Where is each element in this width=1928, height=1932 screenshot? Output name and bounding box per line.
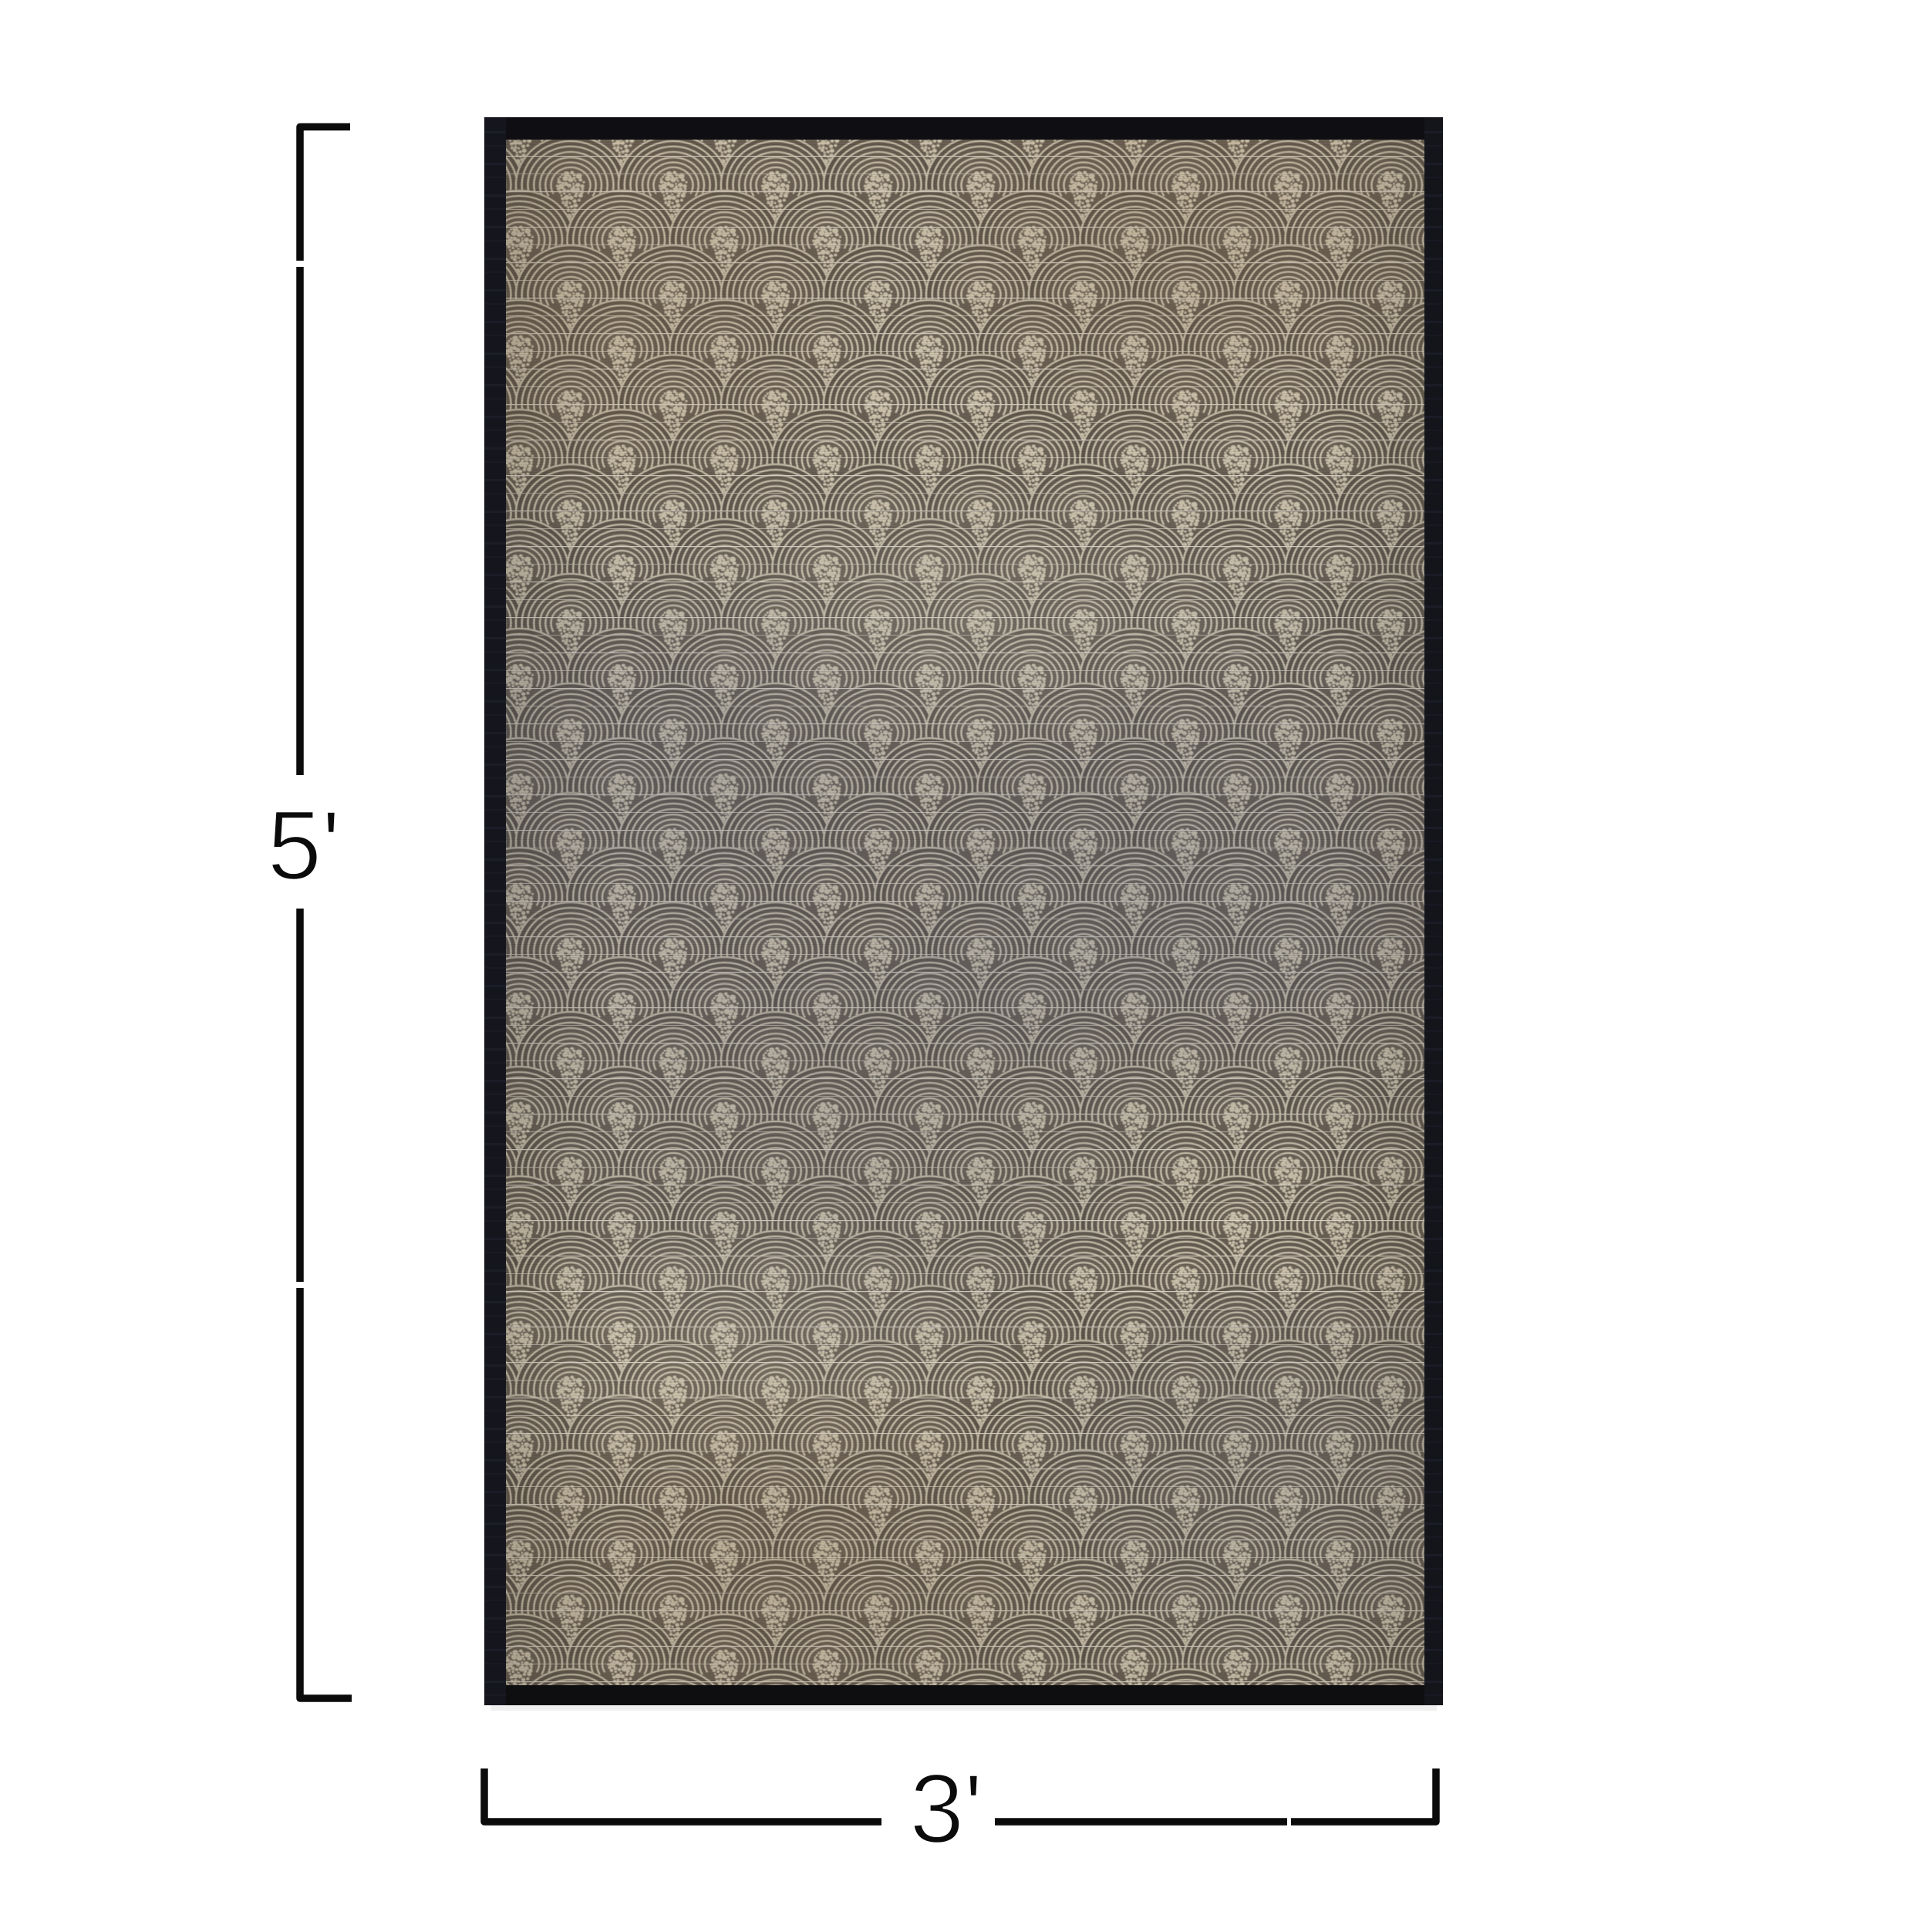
svg-text:3': 3' bbox=[910, 1754, 983, 1863]
svg-text:5': 5' bbox=[268, 791, 341, 900]
